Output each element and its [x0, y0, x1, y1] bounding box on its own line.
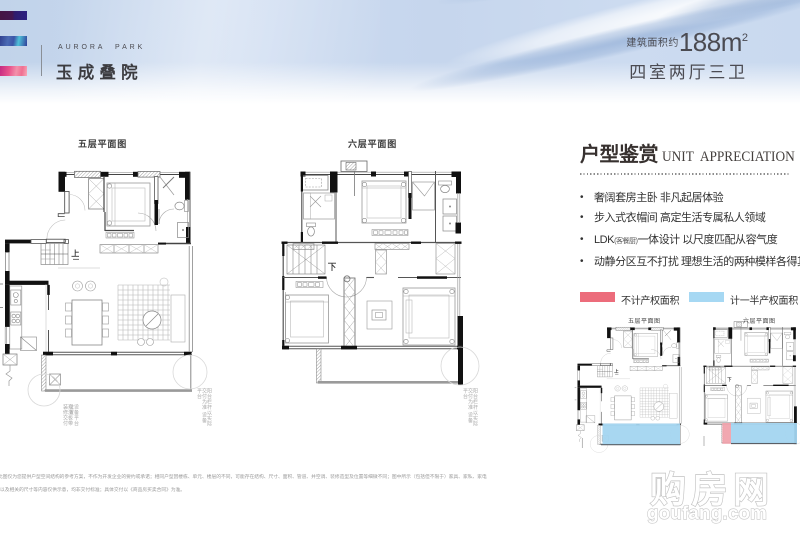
svg-text:goufang.com: goufang.com: [647, 502, 767, 523]
